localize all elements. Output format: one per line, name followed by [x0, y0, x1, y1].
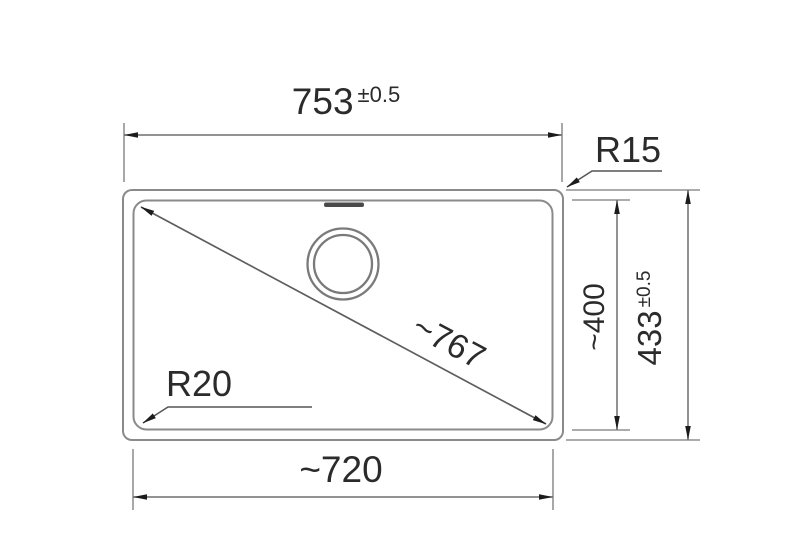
dimension-label-bottom-width: ~720	[299, 449, 382, 490]
dimension-bottom-width: ~720	[133, 449, 553, 510]
dimension-top-width: 753±0.5	[124, 81, 562, 182]
radius-label-r20: R20	[166, 363, 232, 404]
dimension-value: 433	[631, 310, 668, 365]
dimension-inner-depth: ~400	[572, 200, 630, 430]
callout-outer-corner-radius: R15	[567, 129, 662, 187]
overflow-slot	[324, 203, 364, 208]
dimension-label-outer-depth: 433±0.5	[631, 271, 668, 366]
sink-technical-drawing-page: 753±0.5 R15 ~400 433±0.5 ~767 R20 ~720	[0, 0, 800, 544]
leader-line	[567, 171, 662, 187]
dimension-label-inner-depth: ~400	[578, 283, 611, 351]
dimension-tolerance: ±0.5	[634, 271, 655, 308]
sink-technical-drawing: 753±0.5 R15 ~400 433±0.5 ~767 R20 ~720	[0, 0, 800, 544]
dimension-tolerance: ±0.5	[358, 82, 401, 107]
dimension-value: 753	[292, 81, 354, 122]
dimension-label-top-width: 753±0.5	[292, 81, 400, 122]
radius-label-r15: R15	[595, 129, 661, 170]
